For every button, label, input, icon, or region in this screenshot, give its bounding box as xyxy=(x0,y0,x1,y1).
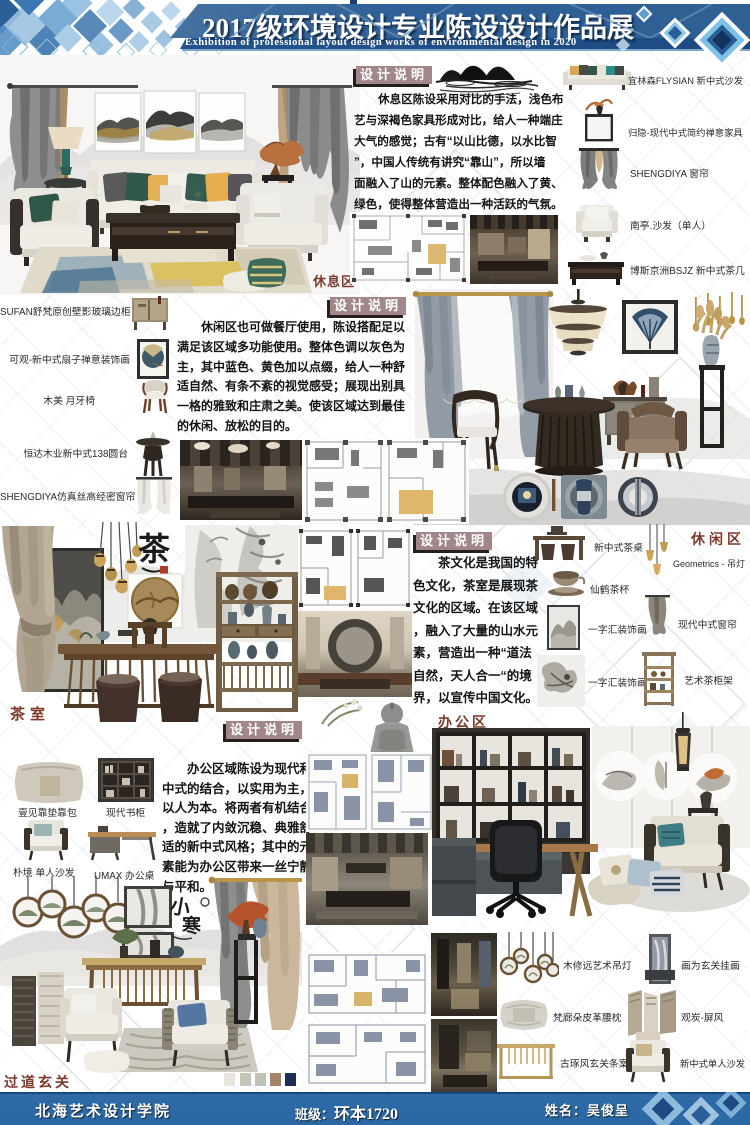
svg-text:寒: 寒 xyxy=(182,914,201,937)
svg-text:茶: 茶 xyxy=(138,531,171,567)
